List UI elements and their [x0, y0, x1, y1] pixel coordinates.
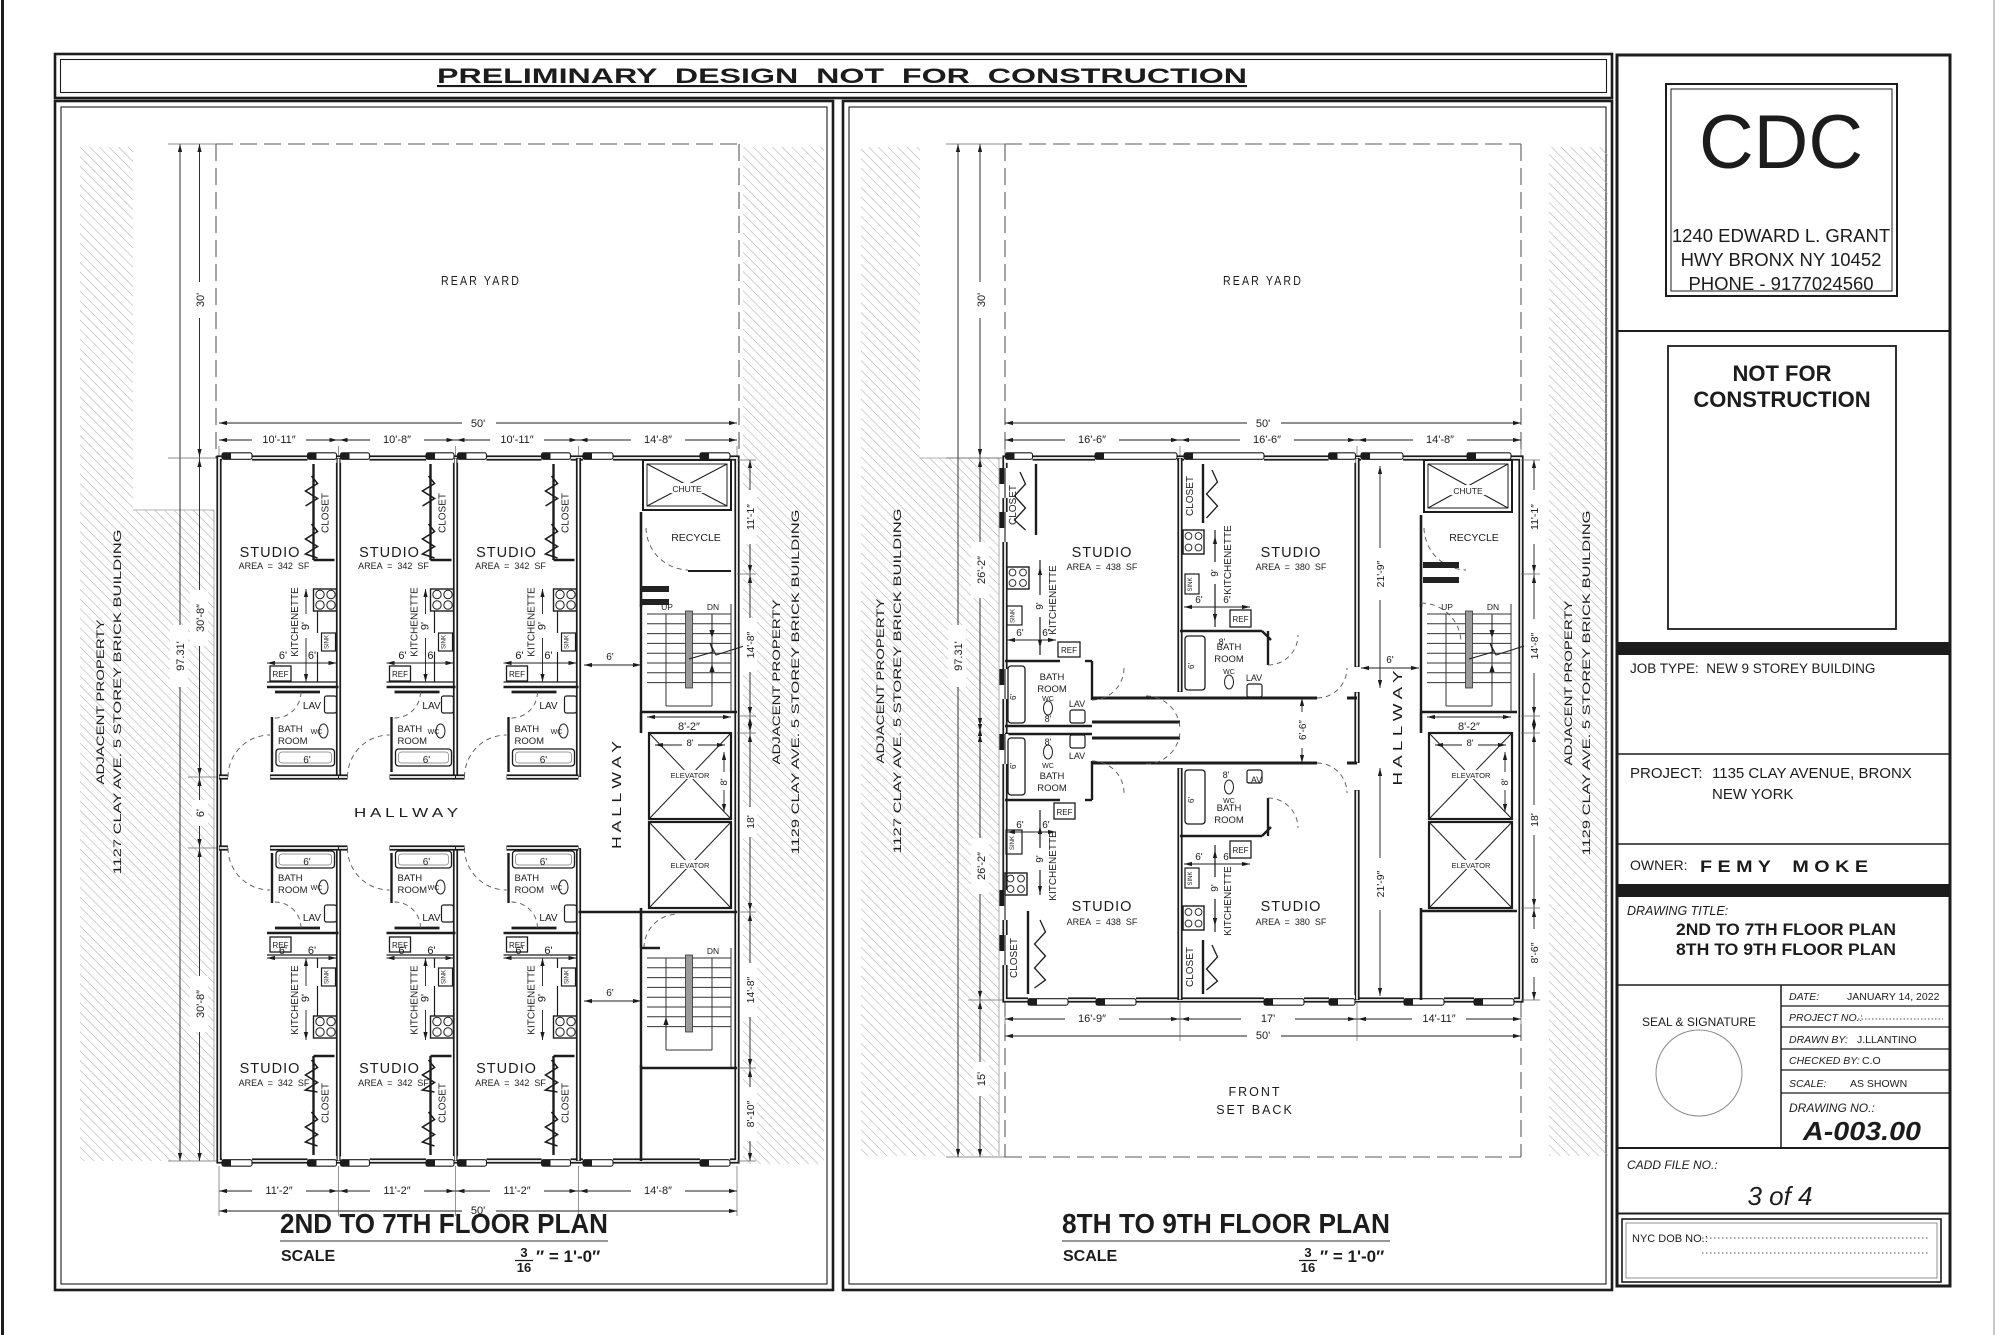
svg-text:6': 6': [1223, 852, 1231, 863]
svg-text:ELEVATOR: ELEVATOR: [671, 771, 710, 780]
svg-text:9': 9': [300, 622, 312, 630]
svg-text:WC: WC: [311, 729, 323, 736]
svg-text:16'-6″: 16'-6″: [1078, 434, 1106, 446]
svg-text:REF: REF: [1061, 646, 1077, 655]
svg-text:8TH TO 9TH FLOOR PLAN: 8TH TO 9TH FLOOR PLAN: [1062, 1208, 1390, 1239]
svg-text:STUDIO: STUDIO: [359, 1061, 420, 1077]
svg-text:BATH: BATH: [398, 873, 423, 884]
svg-text:21'-9″: 21'-9″: [1375, 560, 1387, 587]
svg-text:WC: WC: [1223, 669, 1235, 676]
svg-text:ROOM: ROOM: [398, 885, 428, 896]
svg-text:16'-6″: 16'-6″: [1253, 434, 1281, 446]
svg-text:SCALE: SCALE: [281, 1248, 336, 1265]
svg-text:CONSTRUCTION: CONSTRUCTION: [1693, 387, 1870, 412]
svg-text:30': 30': [195, 293, 207, 307]
svg-text:14'-11″: 14'-11″: [1422, 1013, 1455, 1025]
svg-text:6': 6': [540, 857, 548, 868]
svg-text:SINK: SINK: [1011, 609, 1017, 623]
svg-text:16: 16: [517, 1260, 531, 1275]
svg-text:REAR YARD: REAR YARD: [441, 274, 521, 288]
svg-text:CLOSET: CLOSET: [438, 1083, 449, 1123]
svg-text:DRAWN BY:: DRAWN BY:: [1789, 1034, 1848, 1046]
svg-text:CHUTE: CHUTE: [672, 484, 702, 494]
svg-text:6': 6': [1386, 655, 1394, 666]
svg-text:16'-9″: 16'-9″: [1078, 1013, 1106, 1025]
svg-text:8'-10″: 8'-10″: [745, 1100, 757, 1127]
svg-text:WC: WC: [551, 885, 563, 892]
svg-text:6': 6': [544, 945, 552, 957]
svg-text:LAV: LAV: [539, 913, 557, 924]
svg-text:11'-2″: 11'-2″: [503, 1185, 530, 1197]
svg-text:DN: DN: [707, 602, 719, 612]
svg-text:UP: UP: [1441, 602, 1453, 612]
svg-text:10'-8″: 10'-8″: [383, 434, 411, 446]
svg-text:6': 6': [515, 650, 523, 662]
svg-text:ROOM: ROOM: [398, 736, 428, 747]
svg-text:BATH: BATH: [1040, 771, 1065, 782]
svg-text:30': 30': [976, 293, 988, 307]
svg-text:ROOM: ROOM: [1214, 654, 1244, 665]
svg-text:H A L L W A Y: H A L L W A Y: [1390, 670, 1405, 785]
svg-text:6': 6': [1009, 763, 1018, 769]
svg-text:6': 6': [303, 755, 311, 766]
svg-text:AREA = 438 SF: AREA = 438 SF: [1067, 562, 1138, 572]
svg-text:ROOM: ROOM: [278, 885, 308, 896]
svg-text:REF: REF: [273, 670, 289, 679]
svg-text:LAV: LAV: [1246, 775, 1262, 785]
svg-text:KITCHENETTE: KITCHENETTE: [1223, 525, 1234, 595]
svg-text:ROOM: ROOM: [515, 736, 545, 747]
svg-text:LAV: LAV: [422, 913, 440, 924]
svg-text:CLOSET: CLOSET: [561, 1083, 572, 1123]
svg-text:STUDIO: STUDIO: [1072, 899, 1133, 915]
svg-text:30'-8″: 30'-8″: [195, 990, 207, 1018]
svg-text:18': 18': [1529, 813, 1541, 827]
svg-text:CLOSET: CLOSET: [1008, 485, 1019, 525]
svg-text:14'-8″: 14'-8″: [644, 434, 672, 446]
svg-text:CLOSET: CLOSET: [1185, 476, 1196, 516]
svg-text:8': 8': [1219, 637, 1226, 647]
svg-text:8': 8': [1045, 737, 1052, 747]
svg-text:SINK: SINK: [565, 970, 571, 984]
svg-text:KITCHENETTE: KITCHENETTE: [1048, 831, 1059, 901]
svg-text:8': 8': [686, 738, 693, 749]
svg-text:BATH: BATH: [398, 724, 423, 735]
svg-text:ROOM: ROOM: [1214, 815, 1244, 826]
svg-text:NYC DOB NO.:: NYC DOB NO.:: [1632, 1233, 1708, 1245]
svg-text:6': 6': [427, 650, 435, 662]
svg-text:SET BACK: SET BACK: [1216, 1103, 1294, 1117]
svg-text:LAV: LAV: [422, 701, 440, 712]
svg-text:NEW YORK: NEW YORK: [1712, 786, 1793, 803]
svg-text:50': 50': [471, 418, 485, 430]
svg-text:6': 6': [427, 945, 435, 957]
svg-text:16: 16: [1301, 1260, 1315, 1275]
svg-text:SEAL & SIGNATURE: SEAL & SIGNATURE: [1642, 1015, 1756, 1029]
svg-text:ROOM: ROOM: [278, 736, 308, 747]
svg-text:DRAWING NO.:: DRAWING NO.:: [1789, 1101, 1875, 1115]
svg-text:FRONT: FRONT: [1228, 1085, 1281, 1099]
svg-text:6': 6': [423, 857, 431, 868]
svg-text:DATE:: DATE:: [1789, 991, 1819, 1003]
svg-text:H A L L W A Y: H A L L W A Y: [609, 741, 624, 849]
svg-text:6': 6': [398, 650, 406, 662]
svg-text:PROJECT:: PROJECT:: [1630, 765, 1703, 782]
svg-text:PRELIMINARY DESIGN NOT FOR: PRELIMINARY DESIGN NOT FOR CONSTRUCTION: [437, 65, 1247, 88]
svg-text:ELEVATOR: ELEVATOR: [1452, 861, 1491, 870]
svg-text:6': 6': [1016, 628, 1024, 639]
svg-text:AS SHOWN: AS SHOWN: [1850, 1078, 1907, 1090]
svg-text:STUDIO: STUDIO: [240, 1061, 301, 1077]
svg-text:KITCHENETTE: KITCHENETTE: [1048, 565, 1059, 635]
svg-text:97.31': 97.31': [953, 641, 965, 671]
svg-text:2ND TO 7TH FLOOR PLAN: 2ND TO 7TH FLOOR PLAN: [280, 1208, 608, 1239]
svg-text:″ = 1'-0″: ″ = 1'-0″: [1320, 1247, 1384, 1266]
svg-text:6': 6': [1195, 852, 1203, 863]
svg-text:RECYCLE: RECYCLE: [1449, 532, 1499, 544]
svg-text:UP: UP: [661, 602, 673, 612]
svg-text:SINK: SINK: [325, 970, 331, 984]
svg-text:1129 CLAY AVE. 5 STOREY BRICK: 1129 CLAY AVE. 5 STOREY BRICK BUILDING: [1581, 511, 1593, 856]
svg-text:CHUTE: CHUTE: [1453, 486, 1483, 496]
svg-text:DN: DN: [1487, 602, 1499, 612]
svg-text:ELEVATOR: ELEVATOR: [1452, 771, 1491, 780]
svg-text:AREA = 380 SF: AREA = 380 SF: [1256, 917, 1327, 927]
svg-text:LAV: LAV: [539, 701, 557, 712]
svg-text:WC: WC: [428, 885, 440, 892]
svg-text:CDC: CDC: [1699, 100, 1863, 185]
svg-text:BATH: BATH: [515, 724, 540, 735]
svg-text:AREA = 342 SF: AREA = 342 SF: [239, 1078, 310, 1088]
svg-text:OWNER:: OWNER:: [1630, 857, 1688, 873]
svg-text:STUDIO: STUDIO: [1261, 545, 1322, 561]
svg-text:ELEVATOR: ELEVATOR: [671, 861, 710, 870]
svg-text:6': 6': [303, 857, 311, 868]
svg-text:3 of 4: 3 of 4: [1747, 1181, 1812, 1211]
svg-text:6': 6': [606, 652, 614, 663]
svg-text:STUDIO: STUDIO: [359, 545, 420, 561]
svg-text:F E M Y M O K E: F E M Y M O K E: [1700, 857, 1868, 876]
svg-text:SINK: SINK: [442, 635, 448, 649]
svg-text:26'-2″: 26'-2″: [976, 556, 988, 584]
svg-text:11'-1″: 11'-1″: [1529, 504, 1541, 530]
svg-text:6': 6': [1187, 663, 1196, 669]
svg-text:8': 8': [719, 778, 730, 785]
svg-text:9': 9': [1035, 602, 1046, 610]
svg-text:AREA = 342 SF: AREA = 342 SF: [475, 1078, 546, 1088]
svg-text:REF: REF: [1233, 846, 1249, 855]
svg-text:1127 CLAY AVE. 5 STOREY BRICK: 1127 CLAY AVE. 5 STOREY BRICK BUILDING: [112, 530, 124, 875]
svg-text:6': 6': [308, 650, 316, 662]
svg-text:8': 8': [1500, 778, 1511, 785]
svg-text:14'-8″: 14'-8″: [745, 631, 757, 658]
svg-text:9': 9': [420, 994, 432, 1002]
svg-text:6': 6': [1187, 797, 1196, 803]
svg-text:2ND TO 7TH FLOOR PLAN: 2ND TO 7TH FLOOR PLAN: [1676, 920, 1896, 939]
svg-text:ADJACENT PROPERTY: ADJACENT PROPERTY: [95, 619, 107, 785]
svg-text:8': 8': [1223, 770, 1230, 780]
svg-text:14'-8″: 14'-8″: [644, 1185, 672, 1197]
svg-text:8': 8': [1045, 714, 1052, 724]
svg-text:H A L L W A Y: H A L L W A Y: [354, 805, 458, 820]
svg-text:SINK: SINK: [1010, 836, 1016, 850]
svg-text:WC: WC: [1223, 798, 1235, 805]
svg-text:1240 EDWARD L. GRANT: 1240 EDWARD L. GRANT: [1672, 225, 1890, 246]
svg-text:JOB TYPE: NEW 9 STOREY BUILDI: JOB TYPE: NEW 9 STOREY BUILDING: [1630, 661, 1875, 676]
svg-text:6': 6': [308, 945, 316, 957]
svg-text:10'-11″: 10'-11″: [500, 434, 533, 446]
svg-text:9': 9': [300, 994, 312, 1002]
svg-text:9': 9': [1035, 855, 1046, 863]
svg-text:STUDIO: STUDIO: [240, 545, 301, 561]
svg-text:6': 6': [1195, 595, 1203, 606]
svg-text:REF: REF: [1057, 808, 1073, 817]
svg-text:CLOSET: CLOSET: [561, 493, 572, 533]
svg-text:ROOM: ROOM: [515, 885, 545, 896]
svg-text:11'-2″: 11'-2″: [383, 1185, 410, 1197]
svg-text:AREA = 342 SF: AREA = 342 SF: [475, 561, 546, 571]
svg-text:J.LLANTINO: J.LLANTINO: [1857, 1034, 1917, 1046]
svg-text:9': 9': [537, 994, 549, 1002]
svg-text:REAR YARD: REAR YARD: [1223, 274, 1303, 288]
svg-text:PROJECT NO.:: PROJECT NO.:: [1789, 1012, 1863, 1024]
svg-text:LAV: LAV: [303, 913, 321, 924]
svg-text:8': 8': [1466, 738, 1473, 749]
svg-text:9': 9': [1210, 569, 1221, 577]
svg-text:50': 50': [1256, 1030, 1270, 1042]
svg-text:6': 6': [1042, 628, 1050, 639]
svg-text:ROOM: ROOM: [1037, 684, 1067, 695]
svg-text:6': 6': [1223, 595, 1231, 606]
svg-text:CHECKED BY:: CHECKED BY:: [1789, 1055, 1860, 1067]
svg-text:6': 6': [1042, 820, 1050, 831]
svg-text:14'-8″: 14'-8″: [1426, 434, 1454, 446]
svg-text:PHONE - 9177024560: PHONE - 9177024560: [1688, 273, 1873, 294]
svg-text:BATH: BATH: [515, 873, 540, 884]
svg-text:REF: REF: [392, 670, 408, 679]
svg-text:50': 50': [1256, 418, 1270, 430]
svg-text:REF: REF: [392, 941, 408, 950]
svg-text:1135 CLAY AVENUE, BRONX: 1135 CLAY AVENUE, BRONX: [1712, 765, 1912, 782]
svg-text:18': 18': [745, 815, 757, 829]
svg-text:CLOSET: CLOSET: [321, 1083, 332, 1123]
svg-text:6': 6': [423, 755, 431, 766]
svg-text:8TH TO 9TH FLOOR PLAN: 8TH TO 9TH FLOOR PLAN: [1676, 940, 1896, 959]
svg-text:6'-6″: 6'-6″: [1298, 720, 1309, 740]
svg-text:3: 3: [520, 1245, 527, 1260]
svg-text:BATH: BATH: [278, 873, 303, 884]
svg-text:26'-2″: 26'-2″: [976, 852, 988, 880]
svg-text:WC: WC: [1042, 763, 1054, 770]
svg-text:SINK: SINK: [565, 635, 571, 649]
svg-text:WC: WC: [311, 885, 323, 892]
svg-text:HWY BRONX NY 10452: HWY BRONX NY 10452: [1681, 249, 1882, 270]
svg-text:ADJACENT PROPERTY: ADJACENT PROPERTY: [1563, 600, 1575, 766]
svg-text:SINK: SINK: [325, 635, 331, 649]
svg-text:DN: DN: [707, 946, 719, 956]
svg-text:AREA = 380 SF: AREA = 380 SF: [1256, 562, 1327, 572]
svg-text:AREA = 438 SF: AREA = 438 SF: [1067, 917, 1138, 927]
svg-text:6': 6': [540, 755, 548, 766]
svg-text:SINK: SINK: [1188, 577, 1194, 591]
svg-text:REF: REF: [273, 941, 289, 950]
svg-text:LAV: LAV: [303, 701, 321, 712]
svg-text:SINK: SINK: [442, 970, 448, 984]
svg-text:REF: REF: [1233, 615, 1249, 624]
svg-text:8'-6″: 8'-6″: [1529, 942, 1541, 963]
svg-text:30'-8″: 30'-8″: [195, 604, 207, 632]
svg-text:10'-11″: 10'-11″: [262, 434, 295, 446]
svg-text:LAV: LAV: [1069, 699, 1085, 709]
svg-text:CLOSET: CLOSET: [1009, 938, 1020, 978]
svg-text:WC: WC: [428, 729, 440, 736]
svg-text:15': 15': [976, 1072, 988, 1086]
svg-text:11'-2″: 11'-2″: [265, 1185, 292, 1197]
svg-text:1129 CLAY AVE. 5 STOREY BRICK: 1129 CLAY AVE. 5 STOREY BRICK BUILDING: [790, 510, 802, 855]
svg-text:21'-9″: 21'-9″: [1375, 870, 1387, 897]
svg-text:ROOM: ROOM: [1037, 783, 1067, 794]
svg-text:6': 6': [279, 650, 287, 662]
svg-text:14'-8″: 14'-8″: [1529, 632, 1541, 659]
svg-text:CADD FILE NO.:: CADD FILE NO.:: [1627, 1158, 1718, 1172]
svg-text:BATH: BATH: [278, 724, 303, 735]
svg-text:SINK: SINK: [1188, 871, 1194, 885]
svg-text:ADJACENT PROPERTY: ADJACENT PROPERTY: [771, 599, 783, 765]
svg-text:6': 6': [544, 650, 552, 662]
svg-text:3: 3: [1304, 1245, 1311, 1260]
svg-text:REF: REF: [509, 941, 525, 950]
svg-text:AREA = 342 SF: AREA = 342 SF: [239, 561, 310, 571]
svg-text:SCALE: SCALE: [1063, 1248, 1118, 1265]
svg-text:CLOSET: CLOSET: [438, 493, 449, 533]
svg-text:REF: REF: [509, 670, 525, 679]
svg-text:ADJACENT PROPERTY: ADJACENT PROPERTY: [875, 598, 887, 764]
svg-text:17': 17': [1261, 1013, 1275, 1025]
svg-text:6': 6': [1016, 820, 1024, 831]
svg-text:9': 9': [420, 622, 432, 630]
svg-text:″ = 1'-0″: ″ = 1'-0″: [536, 1247, 600, 1266]
svg-text:STUDIO: STUDIO: [476, 1061, 537, 1077]
svg-text:A-003.00: A-003.00: [1802, 1116, 1922, 1146]
svg-text:RECYCLE: RECYCLE: [671, 532, 721, 544]
svg-text:14'-8″: 14'-8″: [745, 976, 757, 1003]
svg-text:C.O: C.O: [1862, 1055, 1881, 1067]
svg-text:STUDIO: STUDIO: [476, 545, 537, 561]
svg-text:11'-1″: 11'-1″: [745, 504, 757, 530]
svg-text:STUDIO: STUDIO: [1072, 545, 1133, 561]
svg-text:9': 9': [1210, 884, 1221, 892]
svg-text:97.31': 97.31': [175, 641, 187, 671]
svg-text:LAV: LAV: [1246, 673, 1262, 683]
svg-text:6': 6': [606, 988, 614, 999]
svg-text:NOT FOR: NOT FOR: [1733, 361, 1832, 386]
svg-text:BATH: BATH: [1040, 672, 1065, 683]
svg-text:9': 9': [537, 622, 549, 630]
svg-text:WC: WC: [551, 729, 563, 736]
svg-text:8'-2″: 8'-2″: [1458, 721, 1480, 733]
svg-text:6': 6': [1009, 694, 1018, 700]
svg-text:SCALE:: SCALE:: [1789, 1078, 1826, 1090]
svg-text:LAV: LAV: [1069, 751, 1085, 761]
svg-text:DRAWING TITLE:: DRAWING TITLE:: [1627, 904, 1728, 918]
svg-text:8'-2″: 8'-2″: [678, 721, 700, 733]
svg-text:WC: WC: [1042, 696, 1054, 703]
svg-text:1127 CLAY AVE. 5 STOREY BRICK: 1127 CLAY AVE. 5 STOREY BRICK BUILDING: [892, 509, 904, 854]
svg-text:KITCHENETTE: KITCHENETTE: [1223, 866, 1234, 936]
svg-text:AREA = 342 SF: AREA = 342 SF: [358, 1078, 429, 1088]
svg-text:STUDIO: STUDIO: [1261, 899, 1322, 915]
svg-text:CLOSET: CLOSET: [1185, 947, 1196, 987]
svg-text:CLOSET: CLOSET: [321, 493, 332, 533]
svg-text:6': 6': [195, 809, 207, 817]
svg-text:AREA = 342 SF: AREA = 342 SF: [358, 561, 429, 571]
svg-text:JANUARY 14, 2022: JANUARY 14, 2022: [1847, 991, 1940, 1003]
